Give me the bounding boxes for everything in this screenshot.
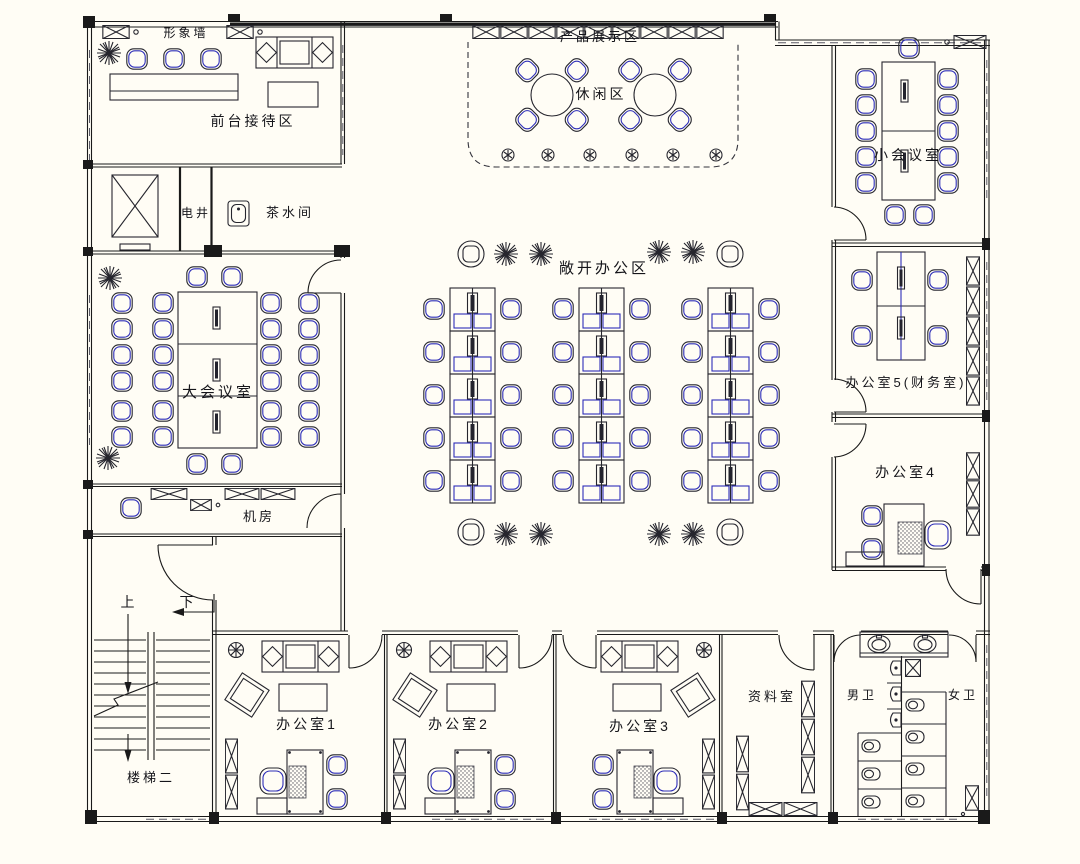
- plant: [97, 41, 121, 65]
- reception-desk: [110, 74, 238, 100]
- label-archive: 资料室: [748, 689, 796, 704]
- floor-plan: 形象墙 前台接待区 产品展示区 休闲区 小会议室 电井 茶水间 敞开办公区 大会…: [0, 0, 1080, 864]
- label-open-office: 敞开办公区: [559, 260, 649, 277]
- label-tea: 茶水间: [266, 205, 314, 220]
- label-display: 产品展示区: [560, 29, 640, 44]
- label-small-meeting: 小会议室: [874, 147, 942, 163]
- label-stairs: 楼梯二: [127, 770, 175, 785]
- labels: 形象墙 前台接待区 产品展示区 休闲区 小会议室 电井 茶水间 敞开办公区 大会…: [121, 26, 979, 785]
- coffee-table: [268, 82, 318, 107]
- room-reception: [97, 25, 333, 107]
- label-stairs-down: 下: [180, 594, 197, 610]
- room-toilets: [858, 632, 979, 816]
- label-leisure: 休闲区: [576, 86, 627, 102]
- room-large-meeting: [96, 266, 319, 474]
- area-open-office: [424, 240, 779, 546]
- label-shaft: 电井: [181, 206, 211, 220]
- walls: [83, 14, 990, 824]
- label-office1: 办公室1: [276, 716, 338, 732]
- label-large-meeting: 大会议室: [182, 384, 254, 401]
- room-tea: [228, 201, 249, 226]
- label-office2: 办公室2: [428, 716, 490, 732]
- round-table: [616, 56, 694, 134]
- label-office3: 办公室3: [609, 718, 671, 734]
- downlights: [502, 149, 722, 161]
- room-elevator: [112, 175, 158, 250]
- label-image-wall: 形象墙: [163, 26, 208, 40]
- room-small-meeting: [856, 35, 986, 225]
- label-office5: 办公室5(财务室): [846, 375, 967, 390]
- label-office4: 办公室4: [875, 464, 937, 480]
- leisure-boundary: [468, 42, 738, 167]
- room-stairs: [94, 594, 214, 762]
- label-stairs-up: 上: [121, 594, 138, 610]
- label-reception: 前台接待区: [211, 113, 296, 129]
- label-machine: 机房: [243, 509, 275, 524]
- column-markers: [83, 14, 990, 824]
- sofa: [256, 37, 333, 68]
- floor-plan-drawing: 形象墙 前台接待区 产品展示区 休闲区 小会议室 电井 茶水间 敞开办公区 大会…: [0, 0, 1080, 864]
- label-toilet-f: 女卫: [948, 687, 978, 702]
- label-toilet-m: 男卫: [847, 688, 877, 702]
- sink: [228, 201, 249, 226]
